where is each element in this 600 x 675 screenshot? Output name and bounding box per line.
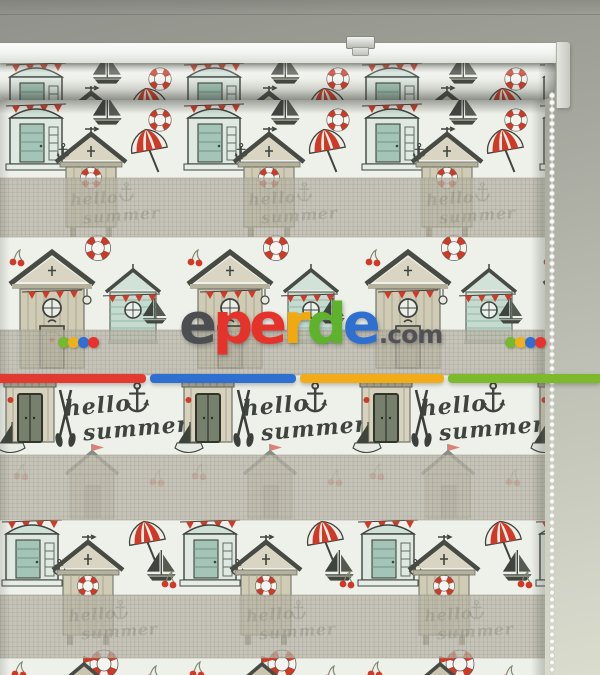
roller-blind-product-photo: hello summer: [0, 0, 600, 675]
fabric-pattern: hello summer: [0, 100, 545, 675]
watermark-stripe: [448, 374, 600, 383]
watermark-stripes: [0, 374, 600, 383]
headrail-end-plate: [556, 42, 570, 108]
logo-letter: p: [213, 297, 249, 353]
watermark-dots-right: [505, 337, 545, 348]
headrail: [0, 43, 566, 63]
watermark-dot: [535, 337, 546, 348]
logo-word: eperde: [179, 297, 377, 353]
logo-letter: e: [343, 297, 377, 353]
watermark-stripe: [300, 374, 444, 383]
watermark-logo: eperde .com: [179, 297, 442, 353]
logo-letter: e: [179, 297, 213, 353]
mesh-band: [0, 455, 545, 520]
watermark-dot: [88, 337, 99, 348]
fabric-panel: hello summer: [0, 100, 545, 675]
watermark-stripe: [150, 374, 296, 383]
watermark-dots-left: [58, 337, 98, 348]
beaded-pull-chain: [548, 92, 556, 675]
logo-letter: r: [283, 297, 307, 353]
logo-letter: d: [307, 297, 343, 353]
roller-tube: [0, 61, 556, 100]
roller-fabric-pattern: [0, 61, 545, 100]
mesh-band: [0, 178, 545, 237]
logo-letter: e: [249, 297, 283, 353]
mounting-bracket-tab: [352, 47, 369, 56]
mesh-band: [0, 595, 545, 658]
logo-suffix: .com: [379, 322, 443, 347]
chain-beads: [548, 92, 556, 675]
watermark-stripe: [0, 374, 146, 383]
